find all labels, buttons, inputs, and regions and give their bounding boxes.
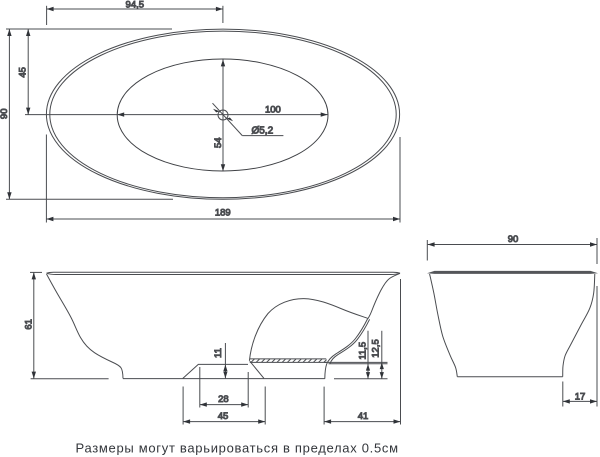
svg-text:189: 189 <box>215 207 231 218</box>
svg-text:45: 45 <box>218 411 229 422</box>
svg-text:54: 54 <box>213 137 224 148</box>
svg-text:Ø5,2: Ø5,2 <box>251 125 273 136</box>
svg-text:94,5: 94,5 <box>126 0 145 10</box>
svg-text:90: 90 <box>0 109 10 120</box>
svg-text:12,5: 12,5 <box>371 339 382 358</box>
svg-text:11,5: 11,5 <box>357 342 368 360</box>
svg-text:90: 90 <box>508 234 519 245</box>
svg-text:Размеры могут варьироваться в: Размеры могут варьироваться в пределах 0… <box>76 441 399 456</box>
svg-text:100: 100 <box>265 104 281 115</box>
svg-text:61: 61 <box>23 319 34 330</box>
svg-text:11: 11 <box>213 348 224 358</box>
svg-text:41: 41 <box>358 411 369 422</box>
svg-text:45: 45 <box>18 67 29 78</box>
svg-text:28: 28 <box>218 394 229 405</box>
svg-text:17: 17 <box>575 391 586 402</box>
